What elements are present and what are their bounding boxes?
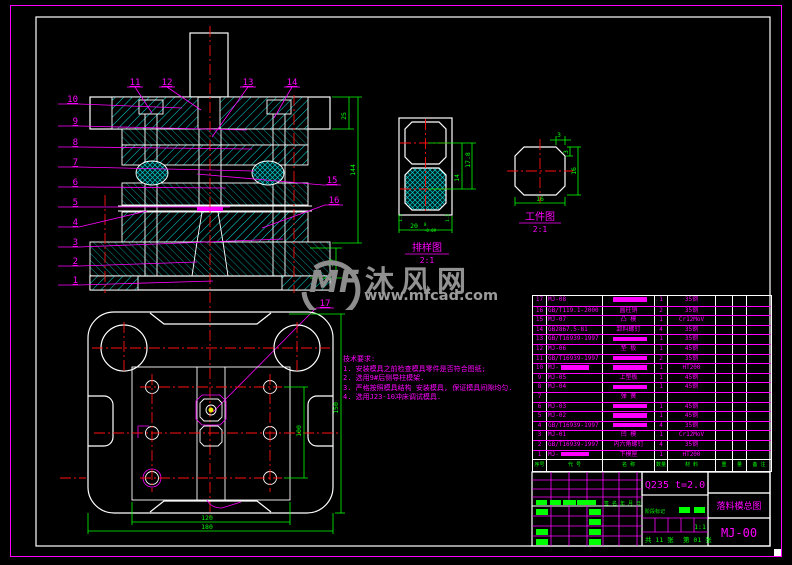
- bom-cell-qty: 1: [655, 431, 668, 440]
- bom-cell-note: [747, 316, 771, 325]
- bom-row: 10MJ-1HT200: [533, 363, 771, 373]
- bom-cell-qty: 1: [655, 383, 668, 392]
- bom-cell-w1: [716, 316, 733, 325]
- dim-closed-height: 144: [349, 164, 357, 176]
- bom-cell-no: 1: [533, 451, 547, 460]
- bom-cell-qty: 1: [655, 364, 668, 373]
- bom-cell-name: [603, 296, 655, 306]
- bom-row: 1MJ-下模座1HT200: [533, 450, 771, 460]
- bom-cell-w1: [716, 364, 733, 373]
- callout-16: 16: [329, 196, 340, 206]
- strip-layout-view: 14 17.8 20 0 -0.09 1.5 1.5 排样图 2:1: [398, 118, 476, 265]
- dim-strip-width: 20: [410, 222, 418, 230]
- bom-cell-qty: 1: [655, 403, 668, 412]
- die-shank: [190, 33, 228, 97]
- bom-cell-w1: [716, 355, 733, 364]
- bom-cell-name: 卸料螺钉: [603, 326, 655, 335]
- callout-2: 2: [73, 257, 78, 267]
- bom-cell-material: 35钢: [668, 355, 716, 364]
- bom-cell-note: [747, 345, 771, 354]
- bom-cell-material: Cr12MoV: [668, 431, 716, 440]
- bom-cell-w1: [716, 412, 733, 421]
- bom-cell-note: [747, 307, 771, 316]
- bom-cell-no: 13: [533, 335, 547, 344]
- bom-header-row: 序号 代 号 名 称 数量 材 料 重 量 备 注: [533, 459, 771, 471]
- bom-cell-qty: 1: [655, 296, 668, 306]
- cad-drawing-viewport: 25 144 30 10 9 8 7 6 5 4 3 2 1 11 12 13: [0, 0, 792, 565]
- bom-cell-material: 45钢: [668, 383, 716, 392]
- bom-cell-no: 8: [533, 383, 547, 392]
- bom-cell-w1: [716, 296, 733, 306]
- bom-cell-w2: [733, 307, 747, 316]
- bom-cell-name: 凸 模: [603, 316, 655, 325]
- bom-cell-name: [603, 422, 655, 431]
- bom-cell-w2: [733, 412, 747, 421]
- corner-marker: [774, 549, 781, 556]
- bom-cell-code: MJ-: [547, 451, 603, 460]
- bom-header-no: 序号: [533, 460, 547, 471]
- sign-label: 签 名: [604, 500, 617, 507]
- title-block: 签 名 年 月 日 阶段标记 1:1 共 11 张 第 01 张 Q235 t=…: [532, 472, 770, 546]
- bom-cell-w2: [733, 403, 747, 412]
- callout-8: 8: [73, 138, 78, 148]
- bom-cell-material: 35钢: [668, 422, 716, 431]
- bom-cell-code: MJ-06: [547, 345, 603, 354]
- bom-cell-note: [747, 393, 771, 402]
- bom-cell-material: [668, 393, 716, 402]
- dim-strip-width-tol-upper: 0: [424, 222, 427, 227]
- bom-cell-no: 4: [533, 422, 547, 431]
- bom-cell-name: 上垫板: [603, 374, 655, 383]
- bom-row: 15MJ-07凸 模1Cr12MoV: [533, 315, 771, 325]
- bom-cell-code: MJ-04: [547, 383, 603, 392]
- bom-cell-no: 9: [533, 374, 547, 383]
- bom-cell-material: 35钢: [668, 296, 716, 306]
- bom-header-note: 备 注: [747, 460, 771, 471]
- bom-header-material: 材 料: [668, 460, 716, 471]
- bom-row: 14GB2867.5-81卸料螺钉435钢: [533, 325, 771, 335]
- bom-cell-name: 垫 板: [603, 345, 655, 354]
- bom-header-weight-unit: 重: [716, 460, 733, 471]
- bom-header-code: 代 号: [547, 460, 603, 471]
- bom-header-name: 名 称: [603, 460, 655, 471]
- bom-cell-qty: 1: [655, 335, 668, 344]
- callout-13: 13: [243, 78, 254, 88]
- callout-11: 11: [130, 78, 141, 88]
- bom-cell-code: GB/T16939-1997: [547, 441, 603, 450]
- bom-cell-material: 45钢: [668, 345, 716, 354]
- callout-6: 6: [73, 178, 78, 188]
- bom-cell-w2: [733, 451, 747, 460]
- dim-plan-inner-width: 120: [201, 514, 213, 522]
- bom-cell-note: [747, 326, 771, 335]
- bom-cell-note: [747, 374, 771, 383]
- bom-cell-note: [747, 441, 771, 450]
- callout-3: 3: [73, 238, 78, 248]
- bom-cell-qty: [655, 393, 668, 402]
- bom-cell-code: [547, 393, 603, 402]
- bom-table: 17MJ-08135钢16GB/T119.1-2000圆柱销235钢15MJ-0…: [532, 295, 772, 472]
- bom-cell-name: [603, 335, 655, 344]
- bom-cell-name: [603, 403, 655, 412]
- bom-cell-w2: [733, 335, 747, 344]
- bom-cell-qty: 1: [655, 412, 668, 421]
- callout-15: 15: [327, 176, 338, 186]
- bom-cell-no: 3: [533, 431, 547, 440]
- bom-cell-name: 下模座: [603, 451, 655, 460]
- bom-cell-material: 35钢: [668, 307, 716, 316]
- bom-cell-no: 7: [533, 393, 547, 402]
- scale-value: 1:1: [694, 523, 706, 531]
- callout-14: 14: [287, 78, 298, 88]
- bom-cell-code: MJ-02: [547, 412, 603, 421]
- bom-cell-code: GB/T16939-1997: [547, 335, 603, 344]
- bom-header-qty: 数量: [655, 460, 668, 471]
- bom-cell-w1: [716, 451, 733, 460]
- bom-cell-code: MJ-05: [547, 374, 603, 383]
- workpiece-view: 3 3 16 16 工件图 2:1: [507, 131, 581, 234]
- tech-req-item: 3. 严格按照模具结构 安装模具, 保证模具间隙均匀.: [343, 384, 553, 394]
- bom-cell-material: 35钢: [668, 441, 716, 450]
- technical-requirements: 技术要求: 1. 安装模具之前检查模具零件是否符合图纸; 2. 选用9#后侧导柱…: [343, 355, 553, 403]
- dim-strip-width-tol-lower: -0.09: [424, 228, 437, 233]
- bom-cell-material: 35钢: [668, 335, 716, 344]
- dim-plan-inner-height: 100: [295, 425, 303, 437]
- bom-header-weight-total: 量: [733, 460, 747, 471]
- bom-cell-code: MJ-: [547, 364, 603, 373]
- bom-cell-no: 14: [533, 326, 547, 335]
- bom-cell-material: 45钢: [668, 403, 716, 412]
- bom-cell-qty: 1: [655, 316, 668, 325]
- bom-cell-no: 6: [533, 403, 547, 412]
- bom-cell-note: [747, 422, 771, 431]
- svg-text:MF: MF: [309, 265, 360, 300]
- tech-req-title: 技术要求:: [343, 355, 553, 365]
- bom-row: 13GB/T16939-1997135钢: [533, 334, 771, 344]
- bom-cell-qty: 2: [655, 355, 668, 364]
- callout-4: 4: [73, 218, 78, 228]
- dim-chamfer-side: 3: [562, 150, 570, 154]
- bom-cell-qty: 1: [655, 374, 668, 383]
- bom-rows: 17MJ-08135钢16GB/T119.1-2000圆柱销235钢15MJ-0…: [533, 296, 771, 459]
- date-label: 年 月 日: [620, 500, 641, 507]
- dim-chamfer-top: 3: [557, 131, 561, 139]
- bom-cell-note: [747, 451, 771, 460]
- bom-cell-note: [747, 355, 771, 364]
- tech-req-item: 1. 安装模具之前检查模具零件是否符合图纸;: [343, 365, 553, 375]
- bom-cell-qty: 4: [655, 441, 668, 450]
- die-plate: [122, 212, 308, 242]
- callout-1: 1: [73, 276, 78, 286]
- bom-cell-code: MJ-01: [547, 431, 603, 440]
- bom-cell-w1: [716, 345, 733, 354]
- bom-cell-w2: [733, 422, 747, 431]
- bom-cell-no: 15: [533, 316, 547, 325]
- sheet-current: 第 01 张: [683, 535, 712, 544]
- bom-cell-code: MJ-08: [547, 296, 603, 306]
- strip-layout-title: 排样图: [412, 241, 442, 254]
- bom-row: 11GB/T16939-1997235钢: [533, 354, 771, 364]
- dim-margin-left: 1.5: [398, 214, 404, 222]
- bom-cell-w2: [733, 374, 747, 383]
- dim-margin-right: 1.5: [445, 214, 451, 222]
- bom-row: 3MJ-01凹 模1Cr12MoV: [533, 430, 771, 440]
- bom-cell-code: GB/T16939-1997: [547, 355, 603, 364]
- sheet-total: 共 11 张: [645, 535, 674, 544]
- drawing-title: 落料模总图: [716, 500, 761, 512]
- bom-cell-w2: [733, 355, 747, 364]
- bom-cell-w2: [733, 364, 747, 373]
- bom-cell-w1: [716, 431, 733, 440]
- bom-cell-w1: [716, 393, 733, 402]
- bom-cell-w2: [733, 345, 747, 354]
- callout-7: 7: [73, 158, 78, 168]
- bom-row: 8MJ-04145钢: [533, 382, 771, 392]
- bom-row: 9MJ-05上垫板145钢: [533, 373, 771, 383]
- bom-cell-w1: [716, 383, 733, 392]
- bom-cell-name: [603, 383, 655, 392]
- bom-cell-qty: 1: [655, 451, 668, 460]
- bom-cell-material: 45钢: [668, 374, 716, 383]
- bom-row: 17MJ-08135钢: [533, 296, 771, 306]
- center-point: [209, 408, 214, 413]
- dim-plan-outer-width: 180: [201, 523, 213, 531]
- bom-row: 16GB/T119.1-2000圆柱销235钢: [533, 306, 771, 316]
- bom-cell-qty: 2: [655, 307, 668, 316]
- dim-plan-outer-height: 150: [332, 402, 340, 414]
- material-spec: Q235 t=2.0: [645, 480, 705, 491]
- bom-row: 12MJ-06垫 板145钢: [533, 344, 771, 354]
- bom-cell-no: 16: [533, 307, 547, 316]
- bom-cell-name: 凹 模: [603, 431, 655, 440]
- drawing-number: MJ-00: [721, 526, 757, 540]
- bom-cell-w1: [716, 335, 733, 344]
- bom-cell-w2: [733, 431, 747, 440]
- dim-top-plate: 25: [340, 112, 348, 120]
- tech-req-item: 4. 选用J23-10冲床调试模具.: [343, 393, 553, 403]
- bom-cell-no: 2: [533, 441, 547, 450]
- bom-cell-note: [747, 383, 771, 392]
- rubber-spring-left: [136, 161, 168, 185]
- callout-10: 10: [67, 95, 78, 105]
- bom-cell-name: [603, 412, 655, 421]
- workpiece-scale: 2:1: [533, 225, 548, 234]
- dim-part-width: 16: [536, 195, 544, 203]
- bom-cell-w1: [716, 403, 733, 412]
- bom-cell-code: MJ-03: [547, 403, 603, 412]
- watermark-url: www.mfcad.com: [364, 288, 498, 304]
- bom-cell-w2: [733, 326, 747, 335]
- bom-cell-no: 10: [533, 364, 547, 373]
- dim-strip-step: 14: [453, 174, 461, 182]
- bom-cell-name: [603, 364, 655, 373]
- callout-12: 12: [162, 78, 173, 88]
- bom-cell-no: 17: [533, 296, 547, 306]
- bom-cell-qty: 1: [655, 345, 668, 354]
- bom-cell-material: 35钢: [668, 326, 716, 335]
- bom-cell-no: 11: [533, 355, 547, 364]
- bom-cell-no: 5: [533, 412, 547, 421]
- bom-cell-note: [747, 296, 771, 306]
- bom-cell-w2: [733, 441, 747, 450]
- bom-cell-code: GB/T119.1-2000: [547, 307, 603, 316]
- bom-cell-note: [747, 364, 771, 373]
- bom-cell-note: [747, 403, 771, 412]
- bom-cell-qty: 4: [655, 326, 668, 335]
- bom-cell-material: Cr12MoV: [668, 316, 716, 325]
- bom-cell-material: HT200: [668, 451, 716, 460]
- bom-cell-note: [747, 431, 771, 440]
- workpiece-title: 工件图: [525, 211, 555, 223]
- bom-cell-w2: [733, 296, 747, 306]
- bom-cell-w2: [733, 383, 747, 392]
- bom-cell-w1: [716, 422, 733, 431]
- bom-cell-w1: [716, 441, 733, 450]
- plan-view: 120 180 100 150: [60, 312, 345, 534]
- bom-cell-name: 弹 簧: [603, 393, 655, 402]
- bom-cell-material: 45钢: [668, 412, 716, 421]
- bom-row: 5MJ-02145钢: [533, 411, 771, 421]
- bom-cell-code: MJ-07: [547, 316, 603, 325]
- bom-row: 2GB/T16939-1997内六角螺钉435钢: [533, 440, 771, 450]
- dim-part-height: 16: [570, 167, 578, 175]
- bom-cell-w2: [733, 316, 747, 325]
- bom-cell-w1: [716, 326, 733, 335]
- bom-cell-w2: [733, 393, 747, 402]
- bom-cell-w1: [716, 307, 733, 316]
- bom-cell-name: 内六角螺钉: [603, 441, 655, 450]
- bom-cell-w1: [716, 374, 733, 383]
- bom-cell-name: 圆柱销: [603, 307, 655, 316]
- dim-strip-pitch: 17.8: [464, 152, 472, 168]
- bom-cell-no: 12: [533, 345, 547, 354]
- callout-9: 9: [73, 117, 78, 127]
- callout-5: 5: [73, 198, 78, 208]
- bom-cell-note: [747, 412, 771, 421]
- bom-row: 6MJ-03145钢: [533, 402, 771, 412]
- bom-row: 7弹 簧: [533, 392, 771, 402]
- bom-row: 4GB/T16939-1997435钢: [533, 421, 771, 431]
- bom-cell-material: HT200: [668, 364, 716, 373]
- stage-label: 阶段标记: [645, 508, 665, 515]
- bom-cell-note: [747, 335, 771, 344]
- tech-req-item: 2. 选用9#后侧导柱模架.: [343, 374, 553, 384]
- bom-cell-name: [603, 355, 655, 364]
- bom-cell-code: GB/T16939-1997: [547, 422, 603, 431]
- bom-cell-code: GB2867.5-81: [547, 326, 603, 335]
- bom-cell-qty: 4: [655, 422, 668, 431]
